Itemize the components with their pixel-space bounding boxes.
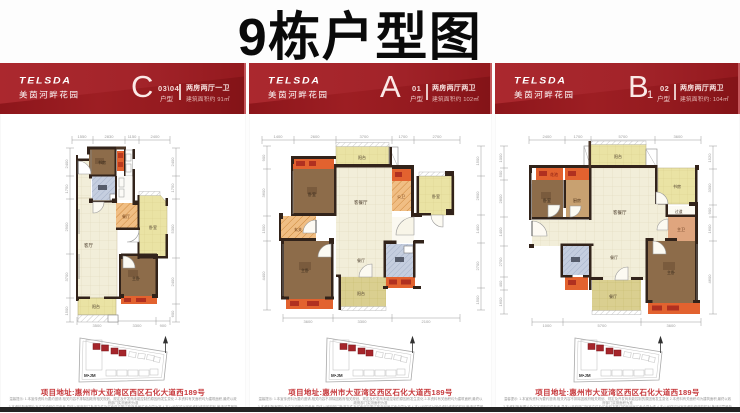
svg-text:阳台: 阳台	[92, 303, 100, 309]
svg-text:餐厅: 餐厅	[610, 254, 618, 260]
svg-text:1500: 1500	[475, 295, 480, 305]
svg-text:主卧: 主卧	[301, 267, 309, 273]
svg-text:1600: 1600	[707, 224, 712, 234]
svg-text:1700: 1700	[574, 134, 584, 139]
svg-text:玄关: 玄关	[294, 226, 302, 232]
svg-text:500: 500	[498, 170, 503, 177]
svg-text:1520: 1520	[707, 153, 712, 163]
svg-text:400: 400	[498, 280, 503, 287]
svg-text:2400: 2400	[543, 134, 553, 139]
svg-text:花池: 花池	[550, 171, 558, 177]
svg-text:5700: 5700	[619, 134, 629, 139]
svg-text:主卧: 主卧	[132, 275, 140, 281]
svg-text:3600: 3600	[304, 319, 314, 324]
svg-text:阳台: 阳台	[357, 290, 365, 296]
svg-text:3600: 3600	[667, 323, 677, 328]
svg-text:M•JM: M•JM	[84, 373, 96, 378]
svg-text:2100: 2100	[422, 319, 432, 324]
svg-text:1550: 1550	[78, 134, 88, 139]
svg-text:客餐厅: 客餐厅	[354, 199, 368, 206]
svg-text:1500: 1500	[261, 224, 266, 234]
svg-text:餐厅: 餐厅	[122, 213, 130, 219]
svg-text:主卫: 主卫	[677, 226, 685, 232]
svg-text:主卧: 主卧	[667, 269, 675, 275]
svg-text:卧室: 卧室	[149, 224, 157, 230]
svg-text:1750: 1750	[64, 184, 69, 194]
svg-text:卧室: 卧室	[432, 193, 440, 199]
svg-text:5300: 5300	[170, 224, 175, 234]
svg-text:1400: 1400	[498, 227, 503, 237]
svg-text:4600: 4600	[707, 274, 712, 284]
svg-text:1400: 1400	[475, 224, 480, 234]
svg-text:1150: 1150	[128, 134, 137, 139]
svg-text:1000: 1000	[543, 323, 553, 328]
svg-text:2700: 2700	[498, 257, 503, 267]
svg-text:3700: 3700	[360, 134, 370, 139]
svg-text:卧室: 卧室	[308, 191, 316, 197]
svg-text:厨房: 厨房	[573, 197, 581, 203]
svg-text:2900: 2900	[64, 222, 69, 232]
svg-text:900: 900	[160, 323, 167, 328]
svg-text:2600: 2600	[311, 134, 321, 139]
svg-text:餐厅: 餐厅	[357, 257, 365, 263]
svg-text:1750: 1750	[170, 183, 175, 193]
svg-text:2400: 2400	[64, 159, 69, 169]
svg-text:2400: 2400	[170, 277, 175, 287]
svg-text:1700: 1700	[399, 134, 409, 139]
svg-text:2700: 2700	[475, 261, 480, 271]
svg-text:3700: 3700	[64, 272, 69, 282]
svg-text:1500: 1500	[64, 306, 69, 316]
svg-text:3600: 3600	[674, 134, 684, 139]
svg-text:过道: 过道	[675, 209, 683, 214]
svg-text:2800: 2800	[498, 194, 503, 204]
svg-text:3600: 3600	[261, 188, 266, 198]
svg-text:2400: 2400	[151, 134, 161, 139]
svg-text:M•JM: M•JM	[579, 373, 591, 378]
svg-text:600: 600	[170, 310, 175, 317]
svg-text:3300: 3300	[133, 323, 143, 328]
svg-text:900: 900	[707, 207, 712, 214]
svg-text:M•JM: M•JM	[331, 373, 343, 378]
svg-text:5700: 5700	[598, 323, 608, 328]
svg-text:4400: 4400	[261, 271, 266, 281]
svg-text:1500: 1500	[475, 156, 480, 166]
svg-text:1600: 1600	[498, 297, 503, 307]
svg-text:公卫: 公卫	[397, 194, 405, 199]
svg-text:900: 900	[261, 154, 266, 161]
svg-text:阳台: 阳台	[358, 154, 366, 160]
svg-text:3500: 3500	[93, 323, 103, 328]
svg-text:书房: 书房	[98, 159, 106, 165]
svg-text:卧室: 卧室	[543, 197, 551, 203]
svg-text:1000: 1000	[498, 153, 503, 163]
svg-text:餐厅: 餐厅	[609, 293, 617, 299]
svg-text:2700: 2700	[433, 134, 443, 139]
svg-text:阳台: 阳台	[614, 153, 622, 159]
svg-text:客厅: 客厅	[84, 242, 93, 249]
svg-text:书房: 书房	[673, 183, 681, 189]
svg-text:客餐厅: 客餐厅	[613, 209, 627, 216]
svg-text:2830: 2830	[105, 134, 115, 139]
svg-text:2600: 2600	[475, 191, 480, 201]
svg-text:3300: 3300	[707, 183, 712, 193]
svg-text:3300: 3300	[358, 319, 368, 324]
svg-text:2400: 2400	[170, 157, 175, 167]
svg-text:1400: 1400	[274, 134, 284, 139]
